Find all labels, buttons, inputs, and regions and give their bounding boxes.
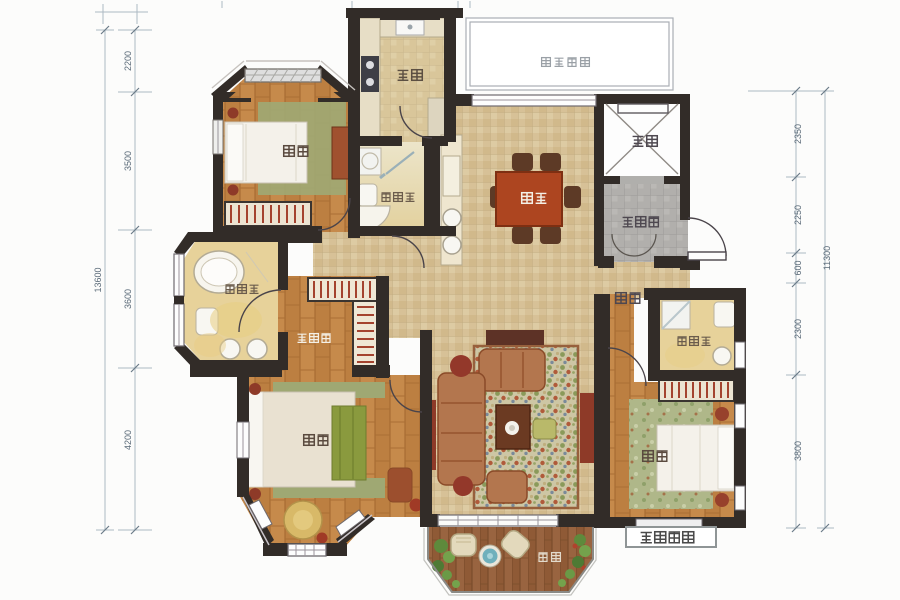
svg-text:2300: 2300 — [793, 319, 803, 339]
svg-text:13600: 13600 — [93, 267, 103, 292]
svg-text:11300: 11300 — [822, 246, 832, 270]
svg-text:2250: 2250 — [793, 205, 803, 225]
svg-text:2350: 2350 — [793, 124, 803, 144]
svg-text:2200: 2200 — [123, 51, 133, 71]
svg-text:3500: 3500 — [123, 151, 133, 171]
svg-text:600: 600 — [793, 260, 803, 275]
svg-text:4200: 4200 — [123, 430, 133, 450]
svg-text:3800: 3800 — [793, 441, 803, 461]
svg-text:3600: 3600 — [123, 289, 133, 309]
